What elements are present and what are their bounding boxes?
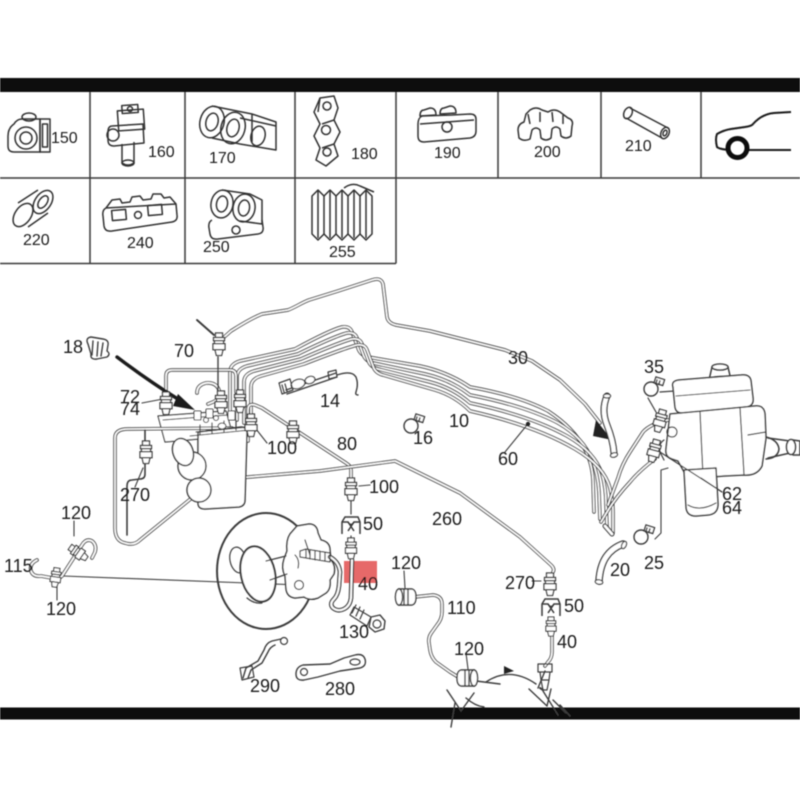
- svg-text:14: 14: [320, 391, 340, 411]
- svg-text:250: 250: [203, 239, 230, 256]
- svg-text:260: 260: [432, 509, 462, 529]
- svg-text:280: 280: [325, 679, 355, 699]
- svg-text:170: 170: [209, 150, 236, 167]
- svg-text:74: 74: [120, 399, 140, 419]
- svg-text:220: 220: [23, 232, 50, 249]
- svg-text:240: 240: [127, 235, 154, 252]
- svg-text:120: 120: [46, 599, 76, 619]
- svg-text:120: 120: [391, 553, 421, 573]
- svg-text:130: 130: [339, 622, 369, 642]
- svg-text:20: 20: [610, 560, 630, 580]
- svg-text:180: 180: [351, 146, 378, 163]
- svg-text:270: 270: [505, 573, 535, 593]
- svg-text:16: 16: [413, 428, 433, 448]
- svg-text:50: 50: [363, 514, 383, 534]
- svg-text:30: 30: [508, 348, 528, 368]
- svg-text:210: 210: [625, 138, 652, 155]
- svg-text:40: 40: [557, 632, 577, 652]
- svg-text:150: 150: [51, 130, 78, 147]
- svg-text:290: 290: [250, 676, 280, 696]
- svg-text:60: 60: [498, 449, 518, 469]
- svg-text:70: 70: [174, 341, 194, 361]
- svg-text:100: 100: [267, 438, 297, 458]
- svg-text:115: 115: [4, 556, 33, 576]
- svg-text:40: 40: [358, 574, 378, 594]
- svg-text:10: 10: [449, 411, 469, 431]
- svg-text:18: 18: [63, 337, 83, 357]
- svg-text:120: 120: [454, 639, 484, 659]
- svg-text:120: 120: [61, 503, 91, 523]
- svg-text:160: 160: [148, 144, 175, 161]
- svg-text:100: 100: [369, 477, 399, 497]
- svg-text:50: 50: [564, 596, 584, 616]
- svg-text:110: 110: [447, 598, 476, 618]
- svg-text:255: 255: [329, 244, 356, 261]
- svg-text:190: 190: [434, 145, 461, 162]
- svg-text:270: 270: [120, 485, 150, 505]
- svg-text:25: 25: [644, 553, 664, 573]
- svg-text:64: 64: [722, 498, 742, 518]
- svg-text:80: 80: [337, 434, 357, 454]
- svg-text:200: 200: [534, 144, 561, 161]
- svg-text:35: 35: [644, 357, 664, 377]
